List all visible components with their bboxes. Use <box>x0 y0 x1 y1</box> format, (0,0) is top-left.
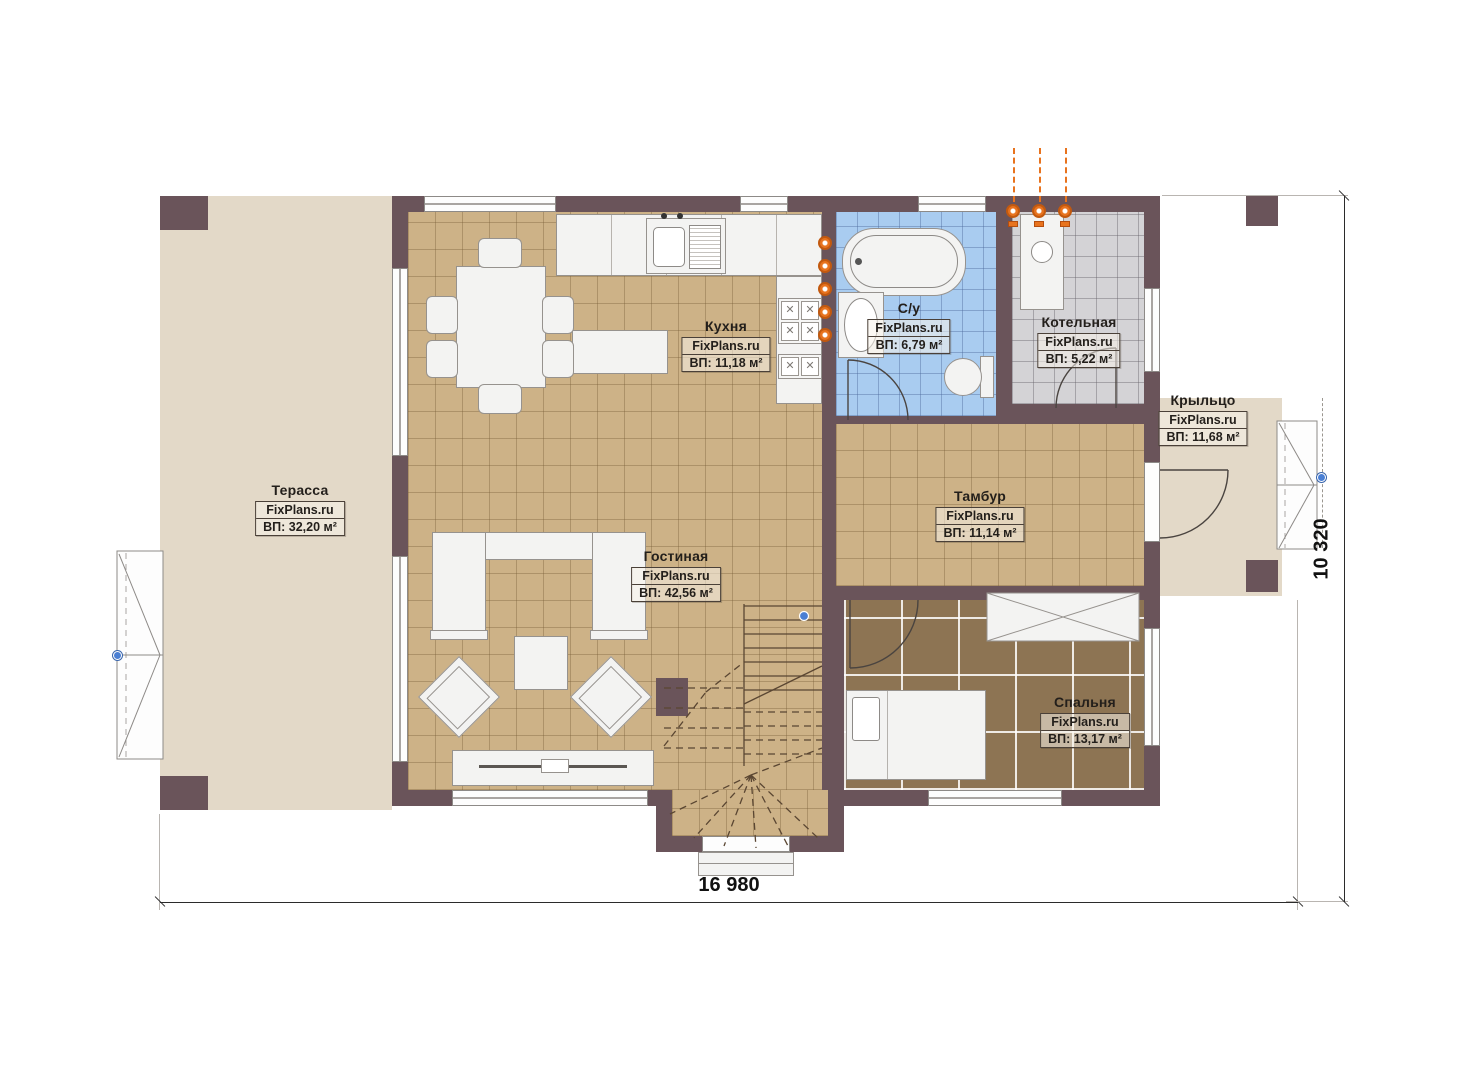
room-title: Кухня <box>681 318 770 334</box>
window-center-marker <box>113 651 122 660</box>
heating-riser <box>818 328 832 342</box>
staircase <box>656 600 846 850</box>
boiler-unit <box>1020 214 1064 310</box>
chair <box>478 238 522 268</box>
bedroom-side-window <box>1144 628 1160 746</box>
room-label-bathroom: С/у FixPlans.ru ВП: 6,79 м² <box>867 300 950 354</box>
kitchen-sink <box>646 218 726 274</box>
dining-table <box>456 266 546 388</box>
sofa-plinth <box>430 630 488 640</box>
room-area: ВП: 11,68 м² <box>1159 429 1246 445</box>
bathtub-drain <box>855 258 862 265</box>
terrace-door-opening <box>392 268 408 456</box>
room-info-box: FixPlans.ru ВП: 32,20 м² <box>255 501 345 536</box>
dimension-height-value: 10 320 <box>1311 518 1334 579</box>
watermark: FixPlans.ru <box>868 320 949 337</box>
room-info-box: FixPlans.ru ВП: 11,14 м² <box>935 507 1024 542</box>
room-title: С/у <box>867 300 950 316</box>
kitchen-window <box>424 196 556 212</box>
watermark: FixPlans.ru <box>1041 714 1129 731</box>
chair <box>478 384 522 414</box>
toilet-bowl <box>944 358 982 396</box>
flue-tick <box>1034 221 1044 227</box>
room-area: ВП: 13,17 м² <box>1041 731 1129 747</box>
living-window <box>452 790 648 806</box>
room-label-boiler: Котельная FixPlans.ru ВП: 5,22 м² <box>1037 314 1120 368</box>
extension-line <box>1286 901 1348 902</box>
heating-riser <box>818 305 832 319</box>
room-title: Тамбур <box>935 488 1024 504</box>
sofa-arm <box>432 532 486 632</box>
terrace-pillar <box>160 196 208 230</box>
room-info-box: FixPlans.ru ВП: 42,56 м² <box>631 567 721 602</box>
room-label-bedroom: Спальня FixPlans.ru ВП: 13,17 м² <box>1040 694 1130 748</box>
terrace-pillar <box>160 776 208 810</box>
heating-riser <box>818 236 832 250</box>
chair <box>542 296 574 334</box>
living-terrace-window <box>392 556 408 762</box>
wardrobe <box>986 592 1140 642</box>
entry-step <box>698 852 794 876</box>
kitchen-island <box>572 330 668 374</box>
room-info-box: FixPlans.ru ВП: 13,17 м² <box>1040 713 1130 748</box>
bathtub-inner <box>850 235 958 288</box>
room-label-living: Гостиная FixPlans.ru ВП: 42,56 м² <box>631 548 721 602</box>
room-info-box: FixPlans.ru ВП: 11,68 м² <box>1158 411 1247 446</box>
room-label-kitchen: Кухня FixPlans.ru ВП: 11,18 м² <box>681 318 770 372</box>
room-area: ВП: 6,79 м² <box>868 337 949 353</box>
watermark: FixPlans.ru <box>632 568 720 585</box>
flue-line <box>1039 148 1041 202</box>
room-label-tambour: Тамбур FixPlans.ru ВП: 11,14 м² <box>935 488 1024 542</box>
room-title: Котельная <box>1037 314 1120 330</box>
flue-tick <box>1008 221 1018 227</box>
bathroom-window <box>918 196 986 212</box>
heating-riser <box>818 282 832 296</box>
flue-outlet <box>1006 204 1020 218</box>
watermark: FixPlans.ru <box>1038 334 1119 351</box>
toilet-tank <box>980 356 994 398</box>
pillow <box>852 697 880 741</box>
room-title: Крыльцо <box>1158 392 1247 408</box>
chair <box>426 296 458 334</box>
flue-outlet <box>1032 204 1046 218</box>
room-area: ВП: 32,20 м² <box>256 519 344 535</box>
room-area: ВП: 5,22 м² <box>1038 351 1119 367</box>
dimension-line-height <box>1344 196 1345 902</box>
coffee-table <box>514 636 568 690</box>
faucet-dot <box>677 213 683 219</box>
tv-stand <box>452 750 654 786</box>
extension-line <box>1297 600 1298 910</box>
chair <box>426 340 458 378</box>
room-info-box: FixPlans.ru ВП: 11,18 м² <box>681 337 770 372</box>
chair <box>542 340 574 378</box>
extension-line <box>159 814 160 910</box>
watermark: FixPlans.ru <box>936 508 1023 525</box>
tv-base <box>541 759 569 773</box>
bedroom-door <box>848 598 922 672</box>
faucet-dot <box>661 213 667 219</box>
boiler-dial <box>1031 241 1053 263</box>
extension-line <box>1162 195 1348 196</box>
room-label-terrace: Терасса FixPlans.ru ВП: 32,20 м² <box>255 482 345 536</box>
small-window <box>740 196 788 212</box>
porch-pillar <box>1246 196 1278 226</box>
window-center-marker <box>1317 473 1326 482</box>
room-info-box: FixPlans.ru ВП: 6,79 м² <box>867 319 950 354</box>
entrance-door <box>1158 468 1232 542</box>
bed <box>846 690 986 780</box>
bathroom-door <box>846 358 912 424</box>
heating-riser <box>818 259 832 273</box>
dimension-line-width <box>160 902 1298 903</box>
flue-line <box>1013 148 1015 202</box>
stove-burners: ✕✕ <box>778 354 822 379</box>
room-title: Терасса <box>255 482 345 498</box>
bedroom-window <box>928 790 1062 806</box>
room-title: Спальня <box>1040 694 1130 710</box>
flue-tick <box>1060 221 1070 227</box>
sink-bowl <box>653 227 685 267</box>
room-label-porch: Крыльцо FixPlans.ru ВП: 11,68 м² <box>1158 392 1247 446</box>
room-title: Гостиная <box>631 548 721 564</box>
flue-line <box>1065 148 1067 202</box>
porch-pillar <box>1246 560 1278 592</box>
room-info-box: FixPlans.ru ВП: 5,22 м² <box>1037 333 1120 368</box>
bed-line <box>887 691 888 779</box>
sink-drainer <box>689 225 721 269</box>
dimension-width-value: 16 980 <box>698 874 759 897</box>
watermark: FixPlans.ru <box>682 338 769 355</box>
sofa-plinth <box>590 630 648 640</box>
room-area: ВП: 11,14 м² <box>936 525 1023 541</box>
room-area: ВП: 11,18 м² <box>682 355 769 371</box>
room-area: ВП: 42,56 м² <box>632 585 720 601</box>
bathtub <box>842 228 966 296</box>
stove-burners: ✕✕✕✕ <box>778 298 822 344</box>
terrace-steps <box>116 550 166 762</box>
watermark: FixPlans.ru <box>1159 412 1246 429</box>
boiler-window <box>1144 288 1160 372</box>
floor-plan-canvas: ✕✕✕✕ ✕✕ <box>0 0 1474 1080</box>
watermark: FixPlans.ru <box>256 502 344 519</box>
flue-outlet <box>1058 204 1072 218</box>
